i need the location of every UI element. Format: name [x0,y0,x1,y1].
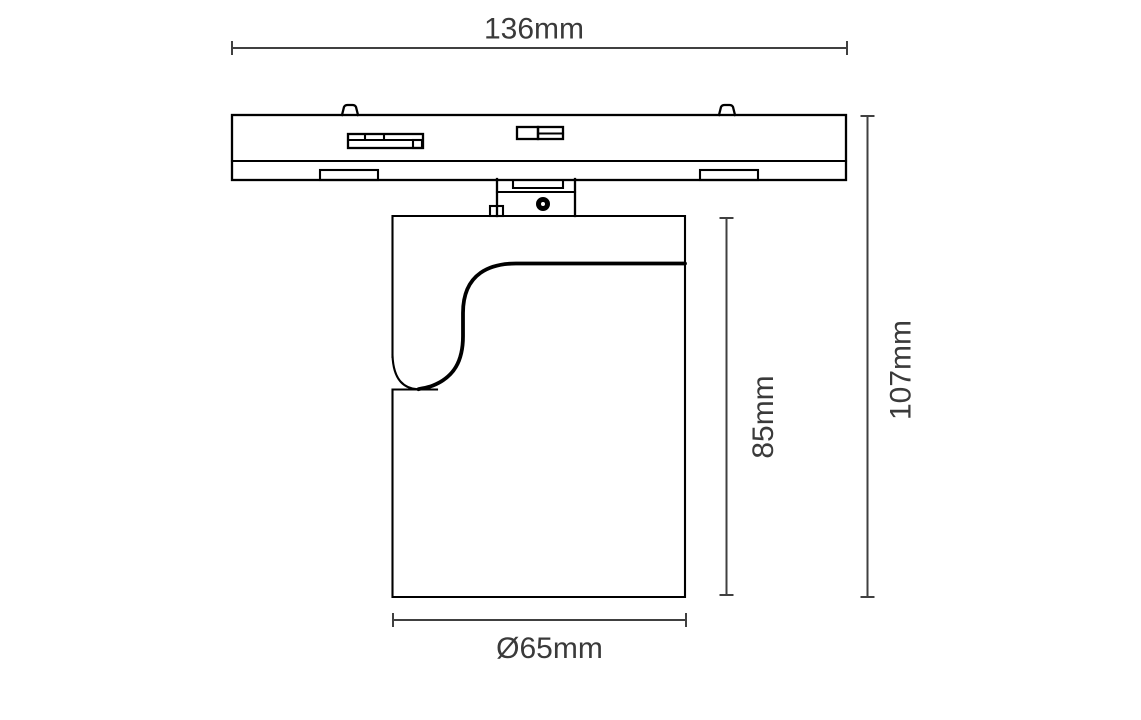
pivot-arm-curve [419,264,686,390]
latch-end-block [413,140,422,148]
latch-detail [348,134,423,148]
track-adapter [232,105,846,180]
connector-cell-left [517,127,538,139]
connector-detail [517,127,563,139]
lamp-head-outline [393,216,686,597]
dimension-body-diameter: Ø65mm [393,613,686,665]
pivot-bracket [490,179,575,216]
dimension-track-width: 136mm [232,13,847,56]
dimension-body-height: 85mm [720,218,781,595]
dim-line-body-diameter [393,613,686,627]
fixture-dimension-drawing: 136mm 107mm 85mm Ø65mm [0,0,1141,720]
pivot-screw-icon [539,200,548,209]
lock-tab-right [719,105,735,115]
dim-label-track-width: 136mm [484,13,584,46]
lamp-head [393,216,686,597]
contact-foot-right [700,170,758,180]
dim-label-body-height: 85mm [747,375,780,458]
lock-tab-left [342,105,358,115]
dim-label-overall-height: 107mm [885,320,918,420]
dim-line-body-height [720,218,734,595]
contact-foot-left [320,170,378,180]
dim-label-body-diameter: Ø65mm [496,632,603,665]
dimension-overall-height: 107mm [861,116,918,597]
dim-line-overall-height [861,116,875,597]
drawing-canvas: 136mm 107mm 85mm Ø65mm [0,0,1141,720]
bracket-channel [513,180,563,188]
